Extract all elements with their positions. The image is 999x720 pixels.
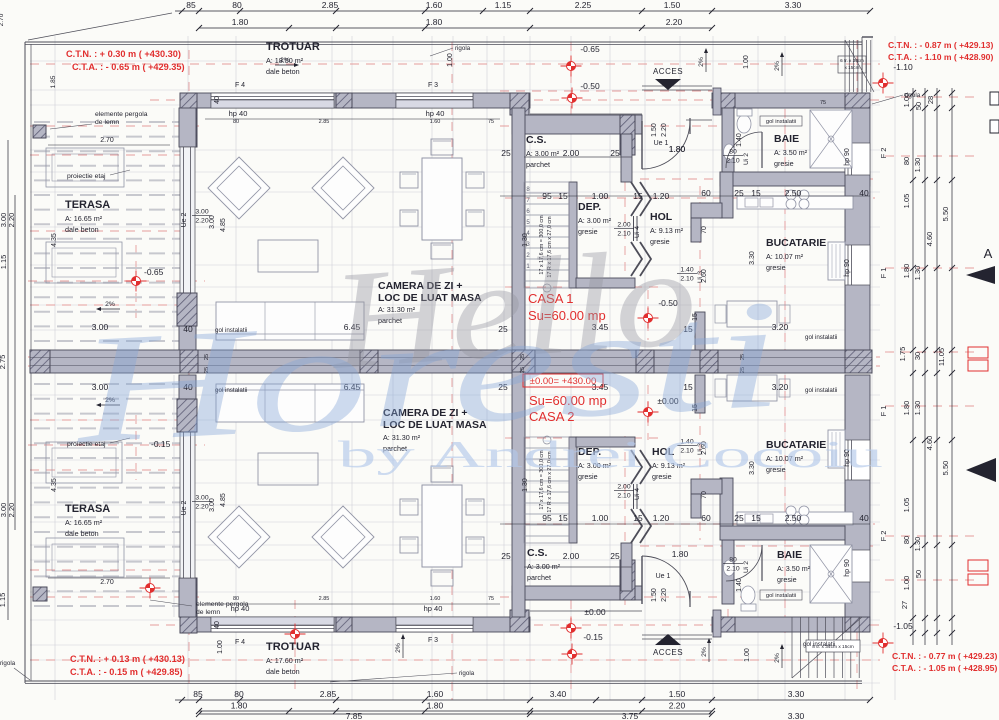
svg-text:1.85: 1.85 [50, 75, 57, 88]
svg-text:3.30: 3.30 [788, 689, 805, 699]
svg-text:2.20: 2.20 [661, 123, 668, 137]
svg-text:A: 3.00 m²: A: 3.00 m² [527, 562, 561, 571]
svg-text:A: 16.65 m²: A: 16.65 m² [65, 214, 103, 223]
svg-text:F 3: F 3 [428, 637, 438, 644]
svg-text:2.85: 2.85 [319, 596, 330, 602]
svg-text:1.20: 1.20 [653, 513, 670, 523]
svg-text:F 4: F 4 [235, 639, 245, 646]
svg-text:rigola: rigola [459, 670, 475, 677]
svg-text:Ue 2: Ue 2 [181, 501, 188, 516]
svg-text:25: 25 [610, 551, 620, 561]
svg-text:27: 27 [900, 601, 909, 609]
svg-text:4.60: 4.60 [925, 232, 934, 247]
svg-text:A: 16.65 m²: A: 16.65 m² [65, 518, 103, 527]
svg-text:2.85: 2.85 [319, 119, 330, 125]
svg-text:2%: 2% [395, 643, 402, 653]
svg-text:1.40: 1.40 [736, 578, 743, 592]
svg-text:dale beton: dale beton [65, 529, 99, 538]
svg-text:3.75: 3.75 [622, 711, 639, 720]
svg-text:C.T.A. : - 0.65 m ( +429.35): C.T.A. : - 0.65 m ( +429.35) [72, 62, 185, 72]
svg-text:by Andrei Cocoiu: by Andrei Cocoiu [338, 434, 883, 476]
svg-text:2.00: 2.00 [563, 148, 580, 158]
svg-text:1.30: 1.30 [913, 401, 922, 416]
svg-text:parchet: parchet [526, 160, 550, 169]
svg-text:60: 60 [701, 513, 711, 523]
svg-text:2.85: 2.85 [322, 0, 339, 10]
svg-text:F 1: F 1 [879, 268, 888, 279]
svg-text:A: 10.07 m²: A: 10.07 m² [766, 252, 804, 261]
svg-text:C.T.A. : - 1.05 m ( +428.95): C.T.A. : - 1.05 m ( +428.95) [892, 663, 997, 673]
svg-text:F 3: F 3 [428, 82, 438, 89]
svg-text:3.30: 3.30 [785, 0, 802, 10]
svg-text:15: 15 [751, 513, 761, 523]
svg-text:A: 3.00 m²: A: 3.00 m² [578, 216, 612, 225]
svg-text:15: 15 [633, 513, 643, 523]
svg-text:BUCATARIE: BUCATARIE [766, 237, 826, 249]
svg-text:-0.15: -0.15 [583, 632, 603, 642]
svg-text:70: 70 [701, 491, 708, 499]
svg-text:28: 28 [926, 96, 935, 104]
svg-text:1.00: 1.00 [743, 55, 750, 69]
svg-text:25: 25 [734, 188, 744, 198]
svg-text:4.35: 4.35 [51, 478, 58, 492]
svg-text:F 2: F 2 [879, 148, 888, 159]
svg-text:2.00: 2.00 [563, 551, 580, 561]
svg-text:80: 80 [902, 536, 911, 544]
svg-text:2.50: 2.50 [785, 513, 802, 523]
svg-text:-0.65: -0.65 [144, 267, 164, 277]
svg-text:dale beton: dale beton [266, 67, 300, 76]
svg-text:11.05: 11.05 [937, 348, 946, 366]
svg-text:A: 17.60 m²: A: 17.60 m² [266, 656, 304, 665]
svg-text:2.20: 2.20 [195, 218, 208, 225]
svg-text:Ui 4: Ui 4 [634, 488, 641, 500]
svg-text:2.20: 2.20 [7, 503, 16, 518]
svg-text:1.60: 1.60 [430, 119, 441, 125]
svg-text:1.30: 1.30 [913, 158, 922, 173]
svg-text:Ui 2: Ui 2 [743, 153, 750, 165]
svg-text:4.60: 4.60 [925, 436, 934, 451]
svg-text:2%: 2% [774, 61, 781, 71]
svg-text:1.50: 1.50 [669, 689, 686, 699]
svg-text:5.50: 5.50 [941, 207, 950, 222]
svg-text:2.10: 2.10 [617, 493, 630, 500]
svg-text:2.70: 2.70 [0, 13, 5, 26]
svg-text:2.20: 2.20 [7, 213, 16, 228]
svg-text:1.00: 1.00 [744, 648, 751, 662]
svg-text:1.00: 1.00 [592, 513, 609, 523]
svg-text:1.30: 1.30 [913, 266, 922, 281]
svg-text:rigola: rigola [905, 92, 921, 99]
svg-text:1.80: 1.80 [902, 401, 911, 416]
svg-text:Ue 2: Ue 2 [181, 213, 188, 228]
svg-text:4.35: 4.35 [51, 233, 58, 247]
svg-text:F 2: F 2 [879, 531, 888, 542]
svg-text:6 tr. x 30cm: 6 tr. x 30cm [840, 58, 864, 63]
svg-text:75: 75 [488, 119, 494, 125]
svg-text:C.T.N. : + 0.13 m ( +430.13): C.T.N. : + 0.13 m ( +430.13) [70, 654, 185, 664]
svg-text:1.15: 1.15 [495, 0, 512, 10]
svg-text:1.30: 1.30 [913, 537, 922, 552]
svg-text:Ue 1: Ue 1 [654, 140, 669, 147]
svg-text:2%: 2% [701, 647, 708, 657]
svg-text:25: 25 [501, 148, 511, 158]
svg-text:2.10: 2.10 [726, 566, 739, 573]
svg-text:hp 90: hp 90 [844, 559, 851, 577]
svg-text:1.05: 1.05 [902, 498, 911, 513]
svg-text:A: A [984, 246, 993, 261]
svg-text:1.15: 1.15 [0, 255, 8, 270]
svg-text:de lemn: de lemn [196, 609, 220, 616]
svg-text:proiectie etaj: proiectie etaj [67, 173, 106, 180]
svg-text:TERASA: TERASA [65, 199, 110, 211]
svg-text:hp 40: hp 40 [426, 109, 445, 118]
svg-text:1.60: 1.60 [426, 0, 443, 10]
svg-text:gol instalatii: gol instalatii [803, 641, 835, 648]
svg-text:75: 75 [488, 596, 494, 602]
svg-text:1.80: 1.80 [672, 549, 689, 559]
svg-text:rigola: rigola [0, 660, 16, 667]
svg-text:TROTUAR: TROTUAR [266, 641, 320, 653]
svg-text:gol instalatii: gol instalatii [766, 119, 796, 125]
svg-text:hp 40: hp 40 [424, 604, 443, 613]
svg-text:gol instalatii: gol instalatii [805, 387, 837, 394]
svg-text:1.50: 1.50 [651, 588, 658, 602]
svg-text:ACCES: ACCES [653, 648, 683, 657]
svg-text:gol instalatii: gol instalatii [766, 593, 796, 599]
svg-text:ACCES: ACCES [653, 67, 683, 76]
svg-text:Ui 2: Ui 2 [743, 561, 750, 573]
svg-text:x 15cm: x 15cm [845, 65, 860, 70]
svg-text:1.50: 1.50 [651, 123, 658, 137]
svg-text:3.00: 3.00 [209, 215, 216, 229]
svg-text:4.85: 4.85 [220, 493, 227, 507]
svg-text:95: 95 [542, 513, 552, 523]
svg-text:BAIE: BAIE [774, 133, 799, 145]
svg-text:TROTUAR: TROTUAR [266, 41, 320, 53]
svg-text:1.80: 1.80 [231, 701, 248, 711]
svg-text:50: 50 [914, 102, 923, 110]
svg-text:2.20: 2.20 [661, 588, 668, 602]
svg-text:2.70: 2.70 [100, 579, 114, 586]
svg-text:1.80: 1.80 [669, 144, 686, 154]
svg-text:40: 40 [214, 96, 221, 104]
svg-text:80: 80 [232, 0, 242, 10]
svg-text:-0.50: -0.50 [580, 81, 600, 91]
svg-text:3.00: 3.00 [209, 498, 216, 512]
svg-text:1.40: 1.40 [736, 133, 743, 147]
svg-text:85: 85 [186, 0, 196, 10]
svg-text:A: 3.50 m²: A: 3.50 m² [777, 564, 811, 573]
svg-text:15: 15 [558, 513, 568, 523]
svg-text:2.75: 2.75 [0, 355, 7, 370]
svg-text:gresie: gresie [777, 575, 797, 584]
svg-text:dale beton: dale beton [266, 667, 300, 676]
svg-text:1.05: 1.05 [902, 194, 911, 209]
svg-text:hp 90: hp 90 [844, 259, 851, 277]
svg-text:2%: 2% [698, 57, 705, 67]
svg-text:80: 80 [902, 157, 911, 165]
svg-text:3.00: 3.00 [195, 495, 208, 502]
svg-text:15: 15 [751, 188, 761, 198]
svg-text:80: 80 [233, 119, 239, 125]
svg-text:30: 30 [913, 352, 922, 360]
svg-text:-0.65: -0.65 [580, 44, 600, 54]
svg-text:gresie: gresie [774, 159, 794, 168]
svg-text:2.85: 2.85 [320, 689, 337, 699]
svg-text:BAIE: BAIE [777, 549, 802, 561]
svg-text:80: 80 [234, 689, 244, 699]
svg-text:40: 40 [859, 188, 869, 198]
svg-text:hp 40: hp 40 [231, 604, 250, 613]
svg-text:-1.10: -1.10 [893, 62, 913, 72]
svg-text:1.75: 1.75 [898, 347, 907, 362]
svg-text:2.20: 2.20 [195, 504, 208, 511]
svg-text:40: 40 [859, 513, 869, 523]
svg-text:3.00: 3.00 [195, 209, 208, 216]
svg-text:2%: 2% [774, 653, 781, 663]
svg-text:dale beton: dale beton [65, 225, 99, 234]
svg-text:hp 90: hp 90 [844, 148, 851, 166]
svg-text:80: 80 [729, 557, 737, 564]
svg-text:C.S.: C.S. [527, 547, 548, 559]
svg-text:2%: 2% [280, 57, 290, 64]
svg-text:80: 80 [233, 596, 239, 602]
svg-text:75: 75 [820, 100, 826, 106]
svg-text:2.50: 2.50 [785, 188, 802, 198]
svg-text:2.10: 2.10 [726, 158, 739, 165]
svg-text:DEP.: DEP. [578, 201, 601, 213]
svg-text:25: 25 [501, 551, 511, 561]
svg-text:F 1: F 1 [879, 406, 888, 417]
svg-text:1.00: 1.00 [217, 640, 224, 654]
svg-text:3.30: 3.30 [788, 711, 805, 720]
svg-text:2.25: 2.25 [575, 0, 592, 10]
svg-text:1.80: 1.80 [426, 17, 443, 27]
svg-text:gol instalatii: gol instalatii [805, 334, 837, 341]
svg-text:TERASA: TERASA [65, 503, 110, 515]
svg-text:elemente pergola: elemente pergola [95, 111, 148, 118]
svg-text:parchet: parchet [527, 573, 551, 582]
svg-text:rigola: rigola [455, 45, 471, 52]
svg-text:1.80: 1.80 [427, 701, 444, 711]
svg-text:1.80: 1.80 [902, 264, 911, 279]
svg-text:80: 80 [729, 149, 737, 156]
svg-text:C.T.N. : + 0.30 m ( +430.30): C.T.N. : + 0.30 m ( +430.30) [66, 49, 181, 59]
svg-text:1.15: 1.15 [0, 593, 7, 608]
svg-text:de lemn: de lemn [95, 119, 119, 126]
svg-text:2.00: 2.00 [617, 484, 630, 491]
svg-text:1.60: 1.60 [427, 689, 444, 699]
svg-text:1.80: 1.80 [232, 17, 249, 27]
svg-text:50: 50 [914, 570, 923, 578]
svg-text:85: 85 [193, 689, 203, 699]
svg-text:1.60: 1.60 [430, 596, 441, 602]
svg-text:±0.00: ±0.00 [584, 607, 605, 617]
svg-text:A: 3.50 m²: A: 3.50 m² [774, 148, 808, 157]
svg-text:C.T.N. : - 0.87 m ( +429.13): C.T.N. : - 0.87 m ( +429.13) [888, 40, 993, 50]
svg-text:C.T.A. : - 0.15 m ( +429.85): C.T.A. : - 0.15 m ( +429.85) [70, 667, 183, 677]
svg-text:hp 40: hp 40 [229, 109, 248, 118]
svg-text:1.50: 1.50 [664, 0, 681, 10]
svg-text:1.30: 1.30 [522, 478, 529, 492]
svg-text:60: 60 [701, 188, 711, 198]
svg-text:25: 25 [734, 513, 744, 523]
svg-text:3.40: 3.40 [550, 689, 567, 699]
svg-text:A: 3.00 m²: A: 3.00 m² [526, 149, 560, 158]
svg-text:C.T.N. : - 0.77 m ( +429.23): C.T.N. : - 0.77 m ( +429.23) [892, 651, 997, 661]
svg-text:2.20: 2.20 [666, 17, 683, 27]
svg-text:2.70: 2.70 [100, 137, 114, 144]
svg-text:3.30: 3.30 [749, 251, 756, 265]
svg-text:F 4: F 4 [235, 82, 245, 89]
svg-text:70: 70 [701, 226, 708, 234]
svg-text:40: 40 [214, 621, 221, 629]
svg-text:25: 25 [610, 148, 620, 158]
svg-text:-1.05: -1.05 [893, 621, 913, 631]
svg-text:C.T.A. : - 1.10 m ( +428.90): C.T.A. : - 1.10 m ( +428.90) [888, 52, 993, 62]
svg-text:C.S.: C.S. [526, 134, 547, 146]
svg-text:5.50: 5.50 [941, 461, 950, 476]
svg-text:1.00: 1.00 [902, 576, 911, 591]
svg-text:7.85: 7.85 [346, 711, 363, 720]
svg-text:2.20: 2.20 [669, 701, 686, 711]
svg-text:1.00: 1.00 [447, 53, 454, 67]
svg-text:4.85: 4.85 [220, 218, 227, 232]
svg-text:Ue 1: Ue 1 [656, 573, 671, 580]
